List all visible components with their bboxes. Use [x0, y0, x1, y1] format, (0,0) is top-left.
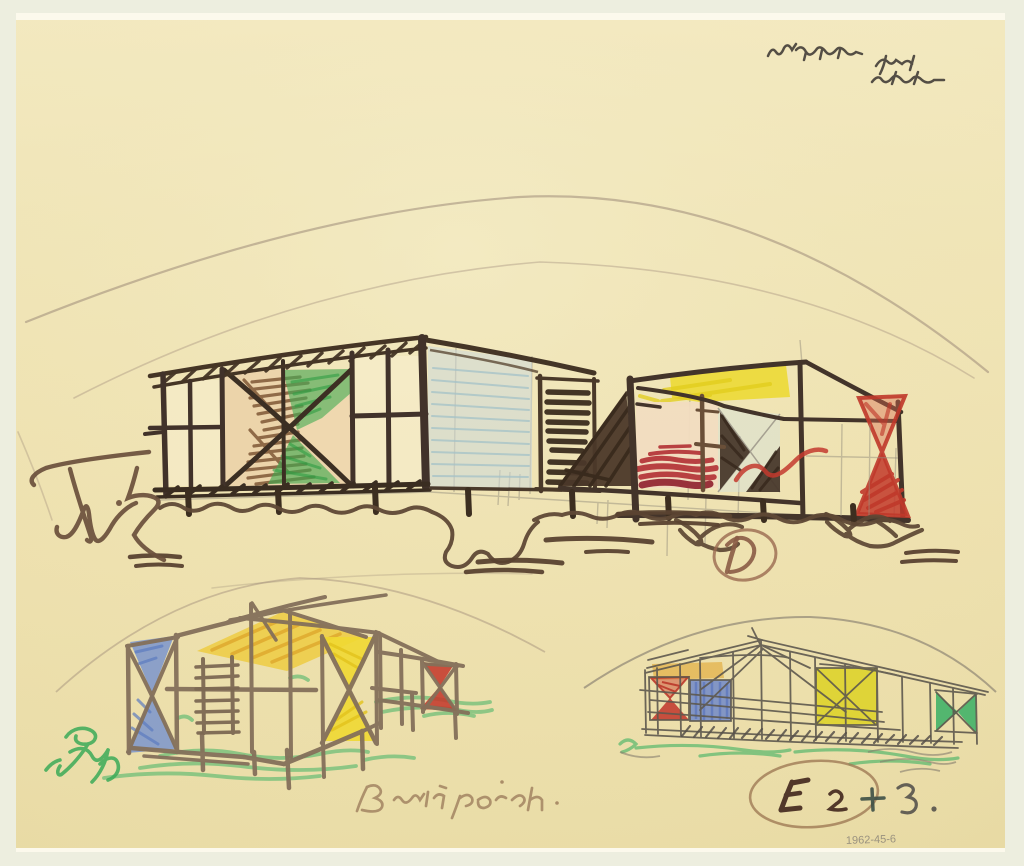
svg-text:1962-45-6: 1962-45-6	[846, 833, 897, 847]
